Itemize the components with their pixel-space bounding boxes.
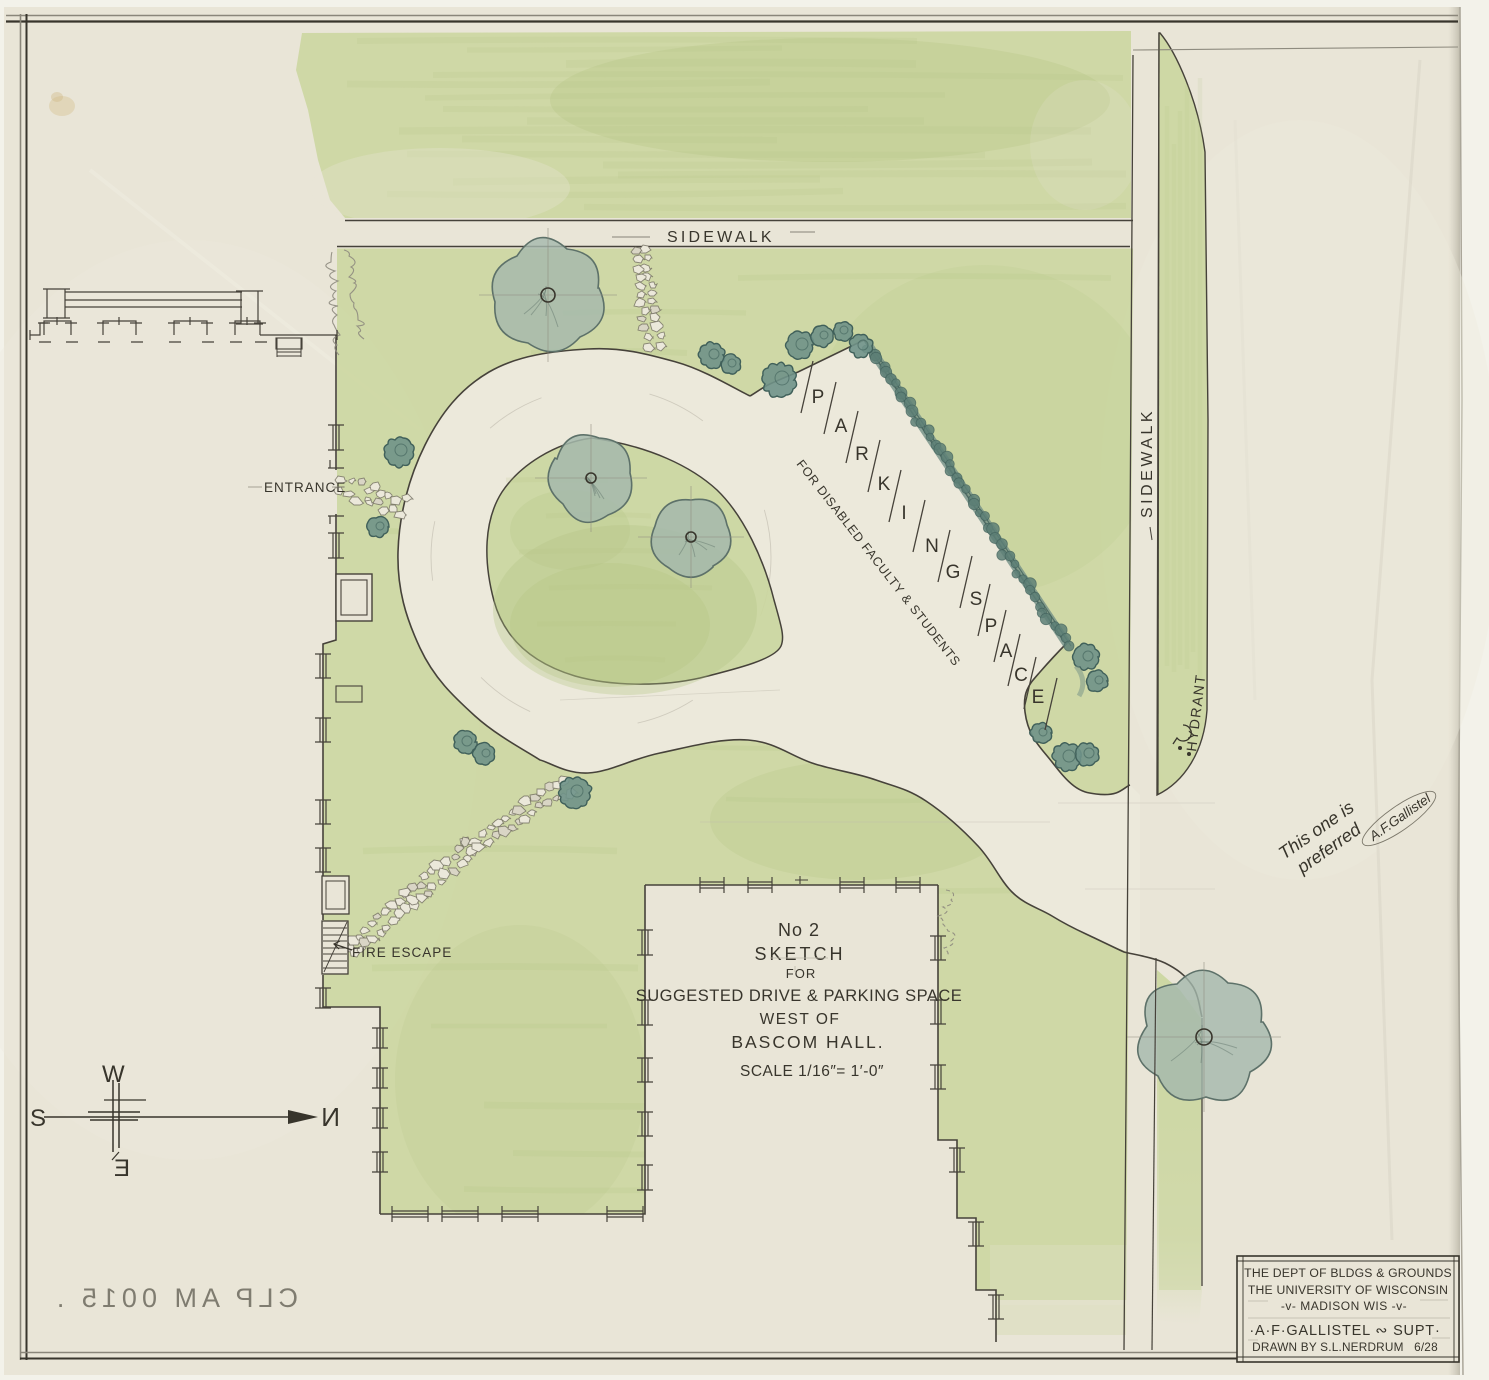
svg-text:E: E (1032, 687, 1045, 708)
svg-text:No 2: No 2 (778, 920, 820, 940)
svg-text:ENTRANCE: ENTRANCE (264, 480, 346, 495)
svg-text:FOR: FOR (786, 966, 816, 981)
svg-text:SUGGESTED DRIVE & PARKING SPAC: SUGGESTED DRIVE & PARKING SPACE (636, 987, 963, 1005)
svg-text:E: E (114, 1155, 130, 1182)
svg-text:R: R (855, 444, 869, 465)
svg-text:N: N (925, 536, 939, 557)
svg-text:FIRE ESCAPE: FIRE ESCAPE (352, 945, 452, 960)
svg-text:SCALE 1/16″= 1′-0″: SCALE 1/16″= 1′-0″ (740, 1063, 884, 1080)
svg-text:G: G (946, 562, 961, 583)
svg-text:P: P (985, 616, 998, 637)
svg-text:-v- MADISON WIS -v-: -v- MADISON WIS -v- (1281, 1299, 1407, 1313)
svg-text:SIDEWALK: SIDEWALK (1139, 408, 1156, 518)
svg-text:SKETCH: SKETCH (754, 944, 845, 964)
svg-text:THE DEPT OF BLDGS & GROUNDS: THE DEPT OF BLDGS & GROUNDS (1244, 1266, 1452, 1280)
svg-text:SIDEWALK: SIDEWALK (667, 229, 775, 246)
svg-text:S: S (970, 589, 983, 610)
svg-text:K: K (878, 474, 891, 495)
svg-text:P: P (812, 387, 825, 408)
svg-text:THE UNIVERSITY OF WISCONSIN: THE UNIVERSITY OF WISCONSIN (1248, 1283, 1448, 1297)
svg-text:BASCOM HALL.: BASCOM HALL. (731, 1032, 884, 1052)
svg-text:A: A (1000, 641, 1013, 662)
svg-text:N: N (321, 1102, 340, 1132)
svg-text:A: A (835, 416, 848, 437)
svg-text:I: I (901, 503, 906, 524)
svg-text:DRAWN BY S.L.NERDRUM 6/28: DRAWN BY S.L.NERDRUM 6/28 (1252, 1340, 1438, 1354)
svg-text:S: S (30, 1105, 46, 1132)
svg-text:C: C (1014, 665, 1028, 686)
svg-text:W: W (102, 1061, 125, 1088)
svg-text:·A·F·GALLISTEL ∾ SUPT·: ·A·F·GALLISTEL ∾ SUPT· (1249, 1323, 1440, 1339)
svg-text:WEST OF: WEST OF (760, 1011, 841, 1028)
svg-text:CLP AM 0015 .: CLP AM 0015 . (52, 1283, 298, 1313)
